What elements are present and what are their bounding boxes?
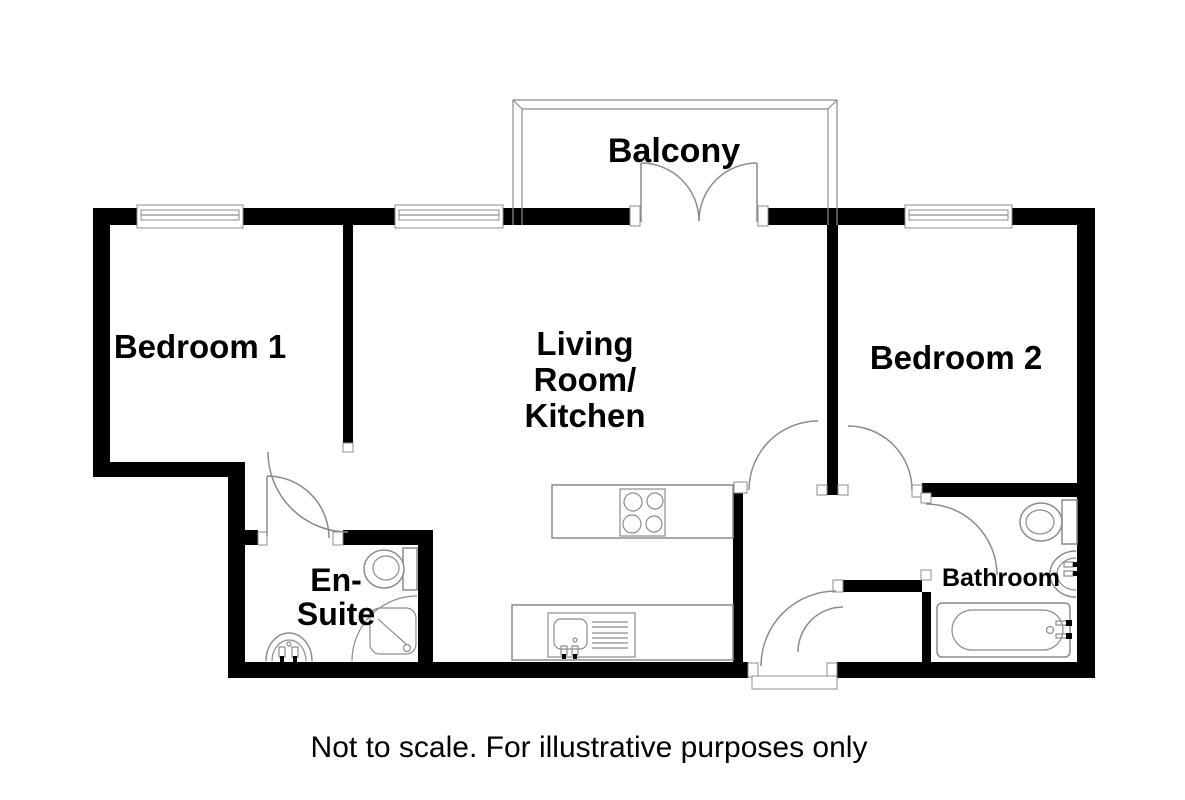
wall-segment xyxy=(243,208,395,225)
door-swing-arc xyxy=(699,163,757,221)
wall-segment xyxy=(93,208,110,477)
room-label-ensuite-line1: En- xyxy=(310,562,362,598)
room-label-balcony: Balcony xyxy=(608,132,740,170)
door-swing-arc xyxy=(798,607,843,652)
counter xyxy=(552,485,733,538)
door-jamb xyxy=(838,485,848,495)
bath-tap-tip xyxy=(1066,620,1072,626)
door-jamb xyxy=(817,485,827,495)
ensuite-basin-icon xyxy=(266,633,312,662)
ensuite-toilet-icon xyxy=(364,548,417,590)
living-room-door xyxy=(749,421,818,490)
window-living-room xyxy=(395,205,503,228)
wall-living-bedroom2 xyxy=(827,225,838,495)
wall-ensuite-top-nub xyxy=(245,530,258,545)
door-jamb xyxy=(827,663,837,677)
balcony-french-doors xyxy=(641,163,757,222)
door-jamb xyxy=(630,206,640,226)
door-jamb xyxy=(258,532,267,545)
room-label-living-line1: Living xyxy=(536,325,633,362)
disclaimer-text: Not to scale. For illustrative purposes … xyxy=(311,731,868,764)
door-swing-arc xyxy=(761,591,836,666)
kitchen-sink-counter xyxy=(512,605,733,660)
shower-tray xyxy=(370,608,416,654)
wall-bathroom-left xyxy=(922,592,931,662)
door-jamb xyxy=(333,532,343,545)
wall-segment xyxy=(228,662,748,678)
room-label-bedroom-1: Bedroom 1 xyxy=(114,328,286,365)
wall-segment xyxy=(93,462,245,477)
wall-bedroom1-living xyxy=(343,225,353,443)
kitchen-island xyxy=(552,485,733,538)
floor-plan-canvas: Balcony Bedroom 1 Living Room/ Kitchen B… xyxy=(0,0,1185,800)
door-swing-arc xyxy=(641,163,699,221)
room-label-ensuite-line2: Suite xyxy=(297,596,375,632)
wall-hall-bathroom xyxy=(843,580,922,592)
shower-drain xyxy=(404,645,411,652)
room-label-bathroom: Bathroom xyxy=(942,564,1060,592)
door-jamb xyxy=(758,206,768,226)
sink-tap-tip xyxy=(562,654,566,659)
shower-diagonal xyxy=(378,619,406,644)
toilet-cistern xyxy=(403,548,417,590)
bath-tap-tip xyxy=(1066,633,1072,639)
wall-segment xyxy=(228,462,245,678)
basin-tap-tip xyxy=(280,656,284,662)
door-jamb xyxy=(748,663,758,677)
wall-segment xyxy=(1077,208,1095,678)
window-bedroom-1 xyxy=(137,205,243,228)
balcony-corner-miter xyxy=(513,100,522,109)
room-label-living-line3: Kitchen xyxy=(524,397,645,434)
door-jamb xyxy=(921,570,931,580)
window-bedroom-2 xyxy=(905,205,1012,228)
door-jamb xyxy=(734,482,747,493)
sink-tap-tip xyxy=(573,654,577,659)
bathroom-toilet-icon xyxy=(1020,500,1077,544)
door-jamb xyxy=(833,580,843,592)
toilet-cistern xyxy=(1062,500,1077,544)
basin-tap-tip xyxy=(1073,562,1077,567)
door-swing-arc xyxy=(848,426,912,490)
basin-tap-tip xyxy=(1073,571,1077,576)
entrance-threshold xyxy=(752,676,837,689)
balcony-corner-miter xyxy=(828,100,837,109)
ensuite-door xyxy=(267,476,329,538)
door-swing-arc xyxy=(749,421,818,490)
wall-segment xyxy=(837,662,1095,678)
bedroom-2-door xyxy=(848,426,912,490)
room-label-bedroom-2: Bedroom 2 xyxy=(870,339,1042,376)
door-jamb xyxy=(343,443,353,452)
wall-ensuite-right xyxy=(418,545,433,662)
wall-bedroom2-bottom xyxy=(922,483,1077,497)
wall-living-hall xyxy=(733,493,743,662)
wall-ensuite-top xyxy=(343,530,433,545)
door-jamb xyxy=(921,493,931,503)
door-swing-arc xyxy=(267,476,329,538)
basin-tap-tip xyxy=(293,656,297,662)
bathtub-icon xyxy=(937,603,1072,657)
room-label-living-line2: Room/ xyxy=(534,361,637,398)
